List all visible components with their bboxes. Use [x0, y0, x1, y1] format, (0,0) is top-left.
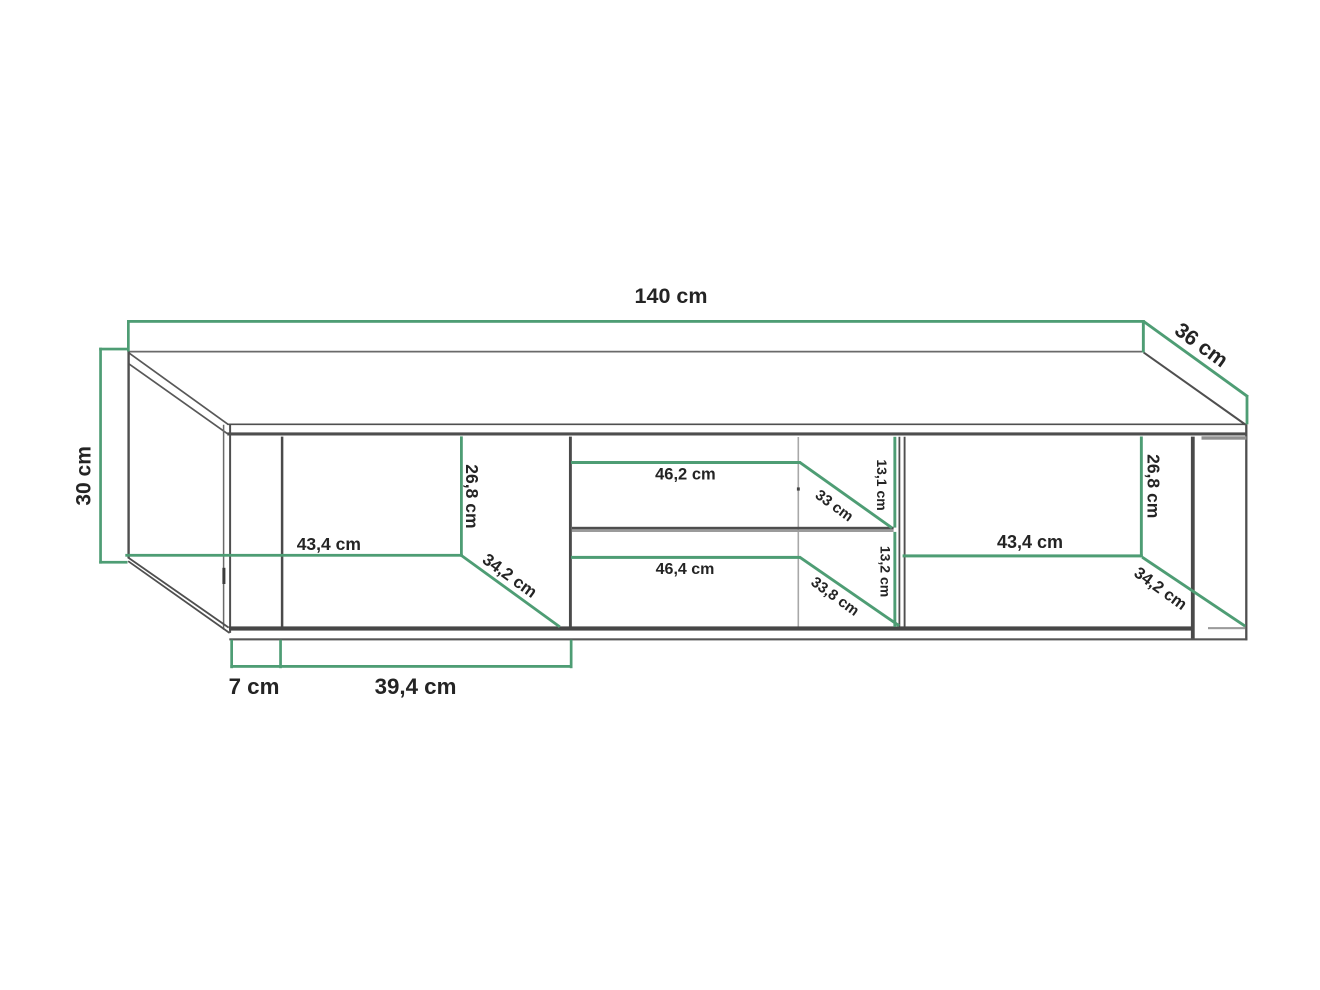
svg-text:140 cm: 140 cm: [635, 284, 708, 308]
svg-text:43,4 cm: 43,4 cm: [297, 534, 361, 554]
svg-text:26,8 cm: 26,8 cm: [462, 464, 482, 528]
svg-text:13,1 cm: 13,1 cm: [874, 459, 890, 510]
svg-text:39,4 cm: 39,4 cm: [375, 674, 457, 699]
svg-text:30 cm: 30 cm: [73, 446, 96, 506]
svg-text:43,4 cm: 43,4 cm: [997, 532, 1063, 552]
svg-text:33 cm: 33 cm: [812, 487, 856, 526]
svg-text:13,2 cm: 13,2 cm: [877, 546, 893, 597]
svg-text:46,2 cm: 46,2 cm: [655, 465, 716, 483]
svg-text:34,2 cm: 34,2 cm: [1131, 564, 1191, 614]
svg-text:46,4 cm: 46,4 cm: [656, 561, 715, 578]
svg-text:7 cm: 7 cm: [229, 674, 280, 699]
svg-text:26,8 cm: 26,8 cm: [1144, 454, 1164, 518]
